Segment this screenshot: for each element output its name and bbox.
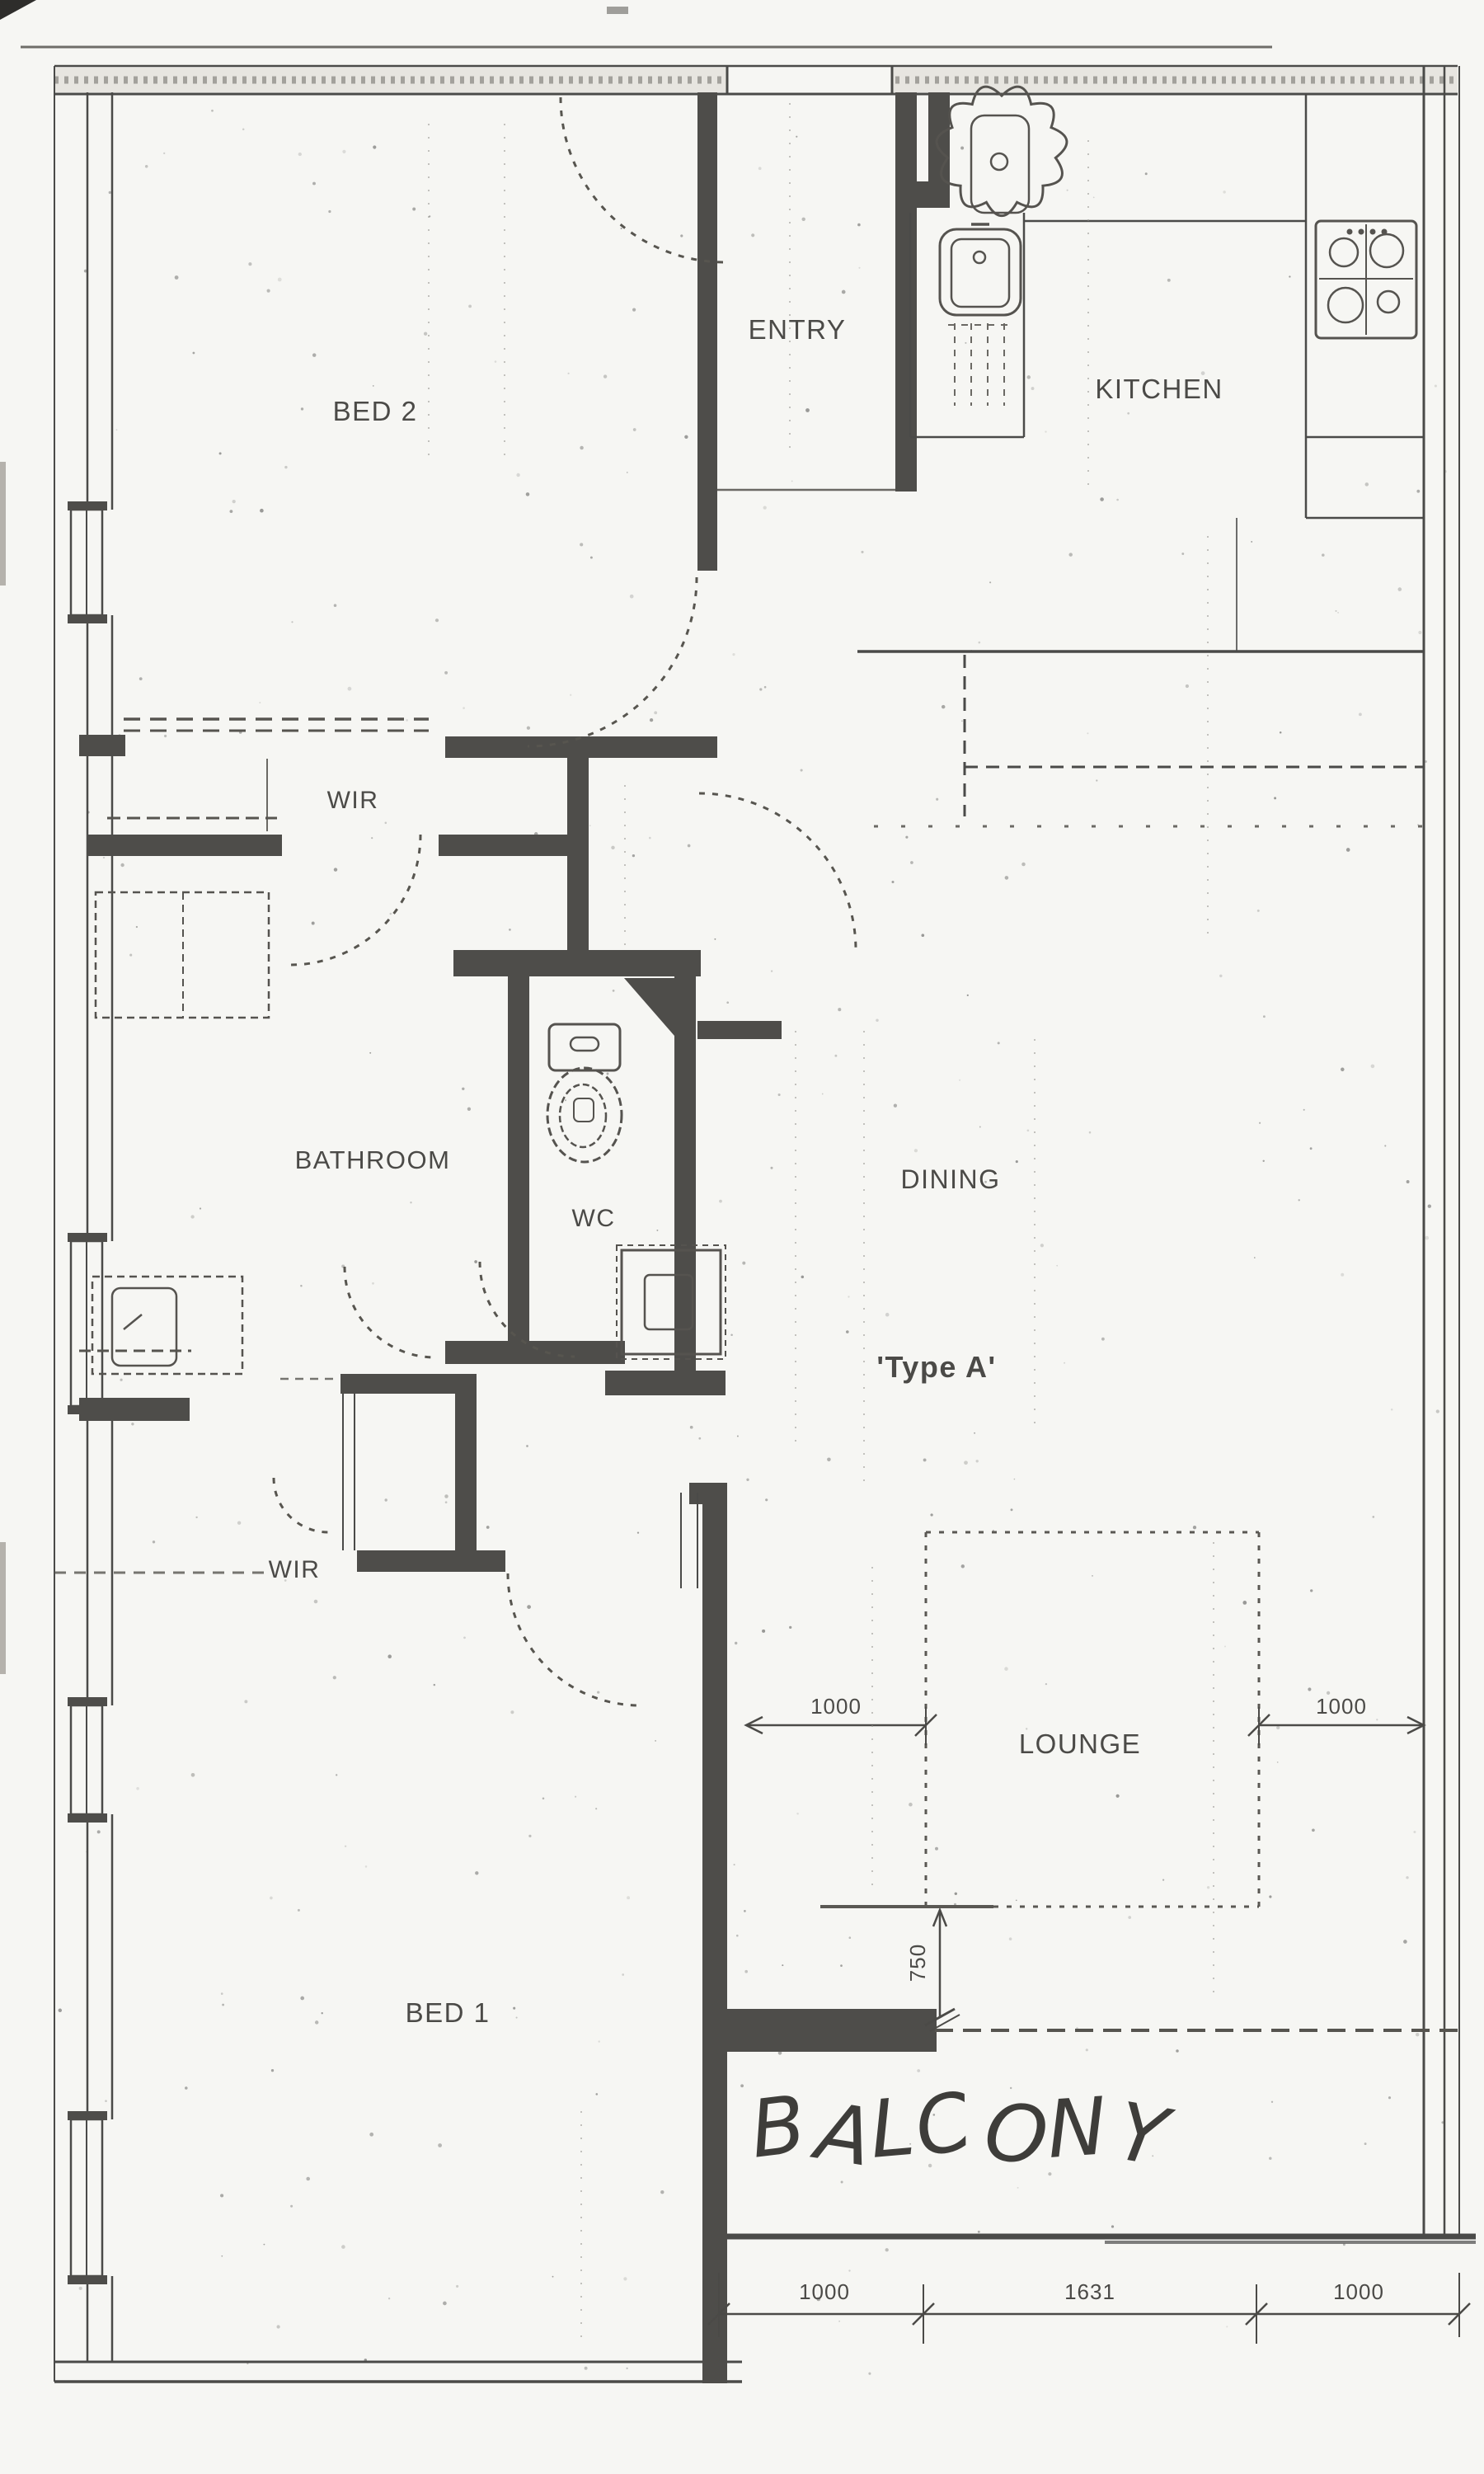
- plant-icon: [937, 87, 1067, 216]
- wall-bed1-right: [702, 1483, 727, 2383]
- scan-streaks: [429, 103, 1214, 2342]
- door-arc-bed2: [528, 577, 697, 746]
- label-entry: ENTRY: [749, 314, 847, 345]
- label-dining: DINING: [901, 1164, 1001, 1194]
- wall-segment: [567, 756, 589, 954]
- room-labels: BED 2 ENTRY KITCHEN WIR BATHROOM WC DINI…: [269, 314, 1223, 2185]
- lounge-dashed-zone: [820, 1532, 1259, 1907]
- dim-bottom-left: 1000: [799, 2279, 850, 2304]
- kitchen-sink-icon: [940, 224, 1021, 406]
- joinery-dashes: [54, 719, 1458, 2030]
- interior-walls: [79, 92, 950, 2383]
- wall-bathroom-bottom: [79, 1398, 190, 1421]
- wall-segment: [697, 1021, 782, 1039]
- label-lounge: LOUNGE: [1019, 1729, 1141, 1759]
- scanned-floor-plan-sheet: BED 2 ENTRY KITCHEN WIR BATHROOM WC DINI…: [0, 0, 1484, 2474]
- dim-bottom-right: 1000: [1333, 2279, 1384, 2304]
- shower-icon: [617, 1245, 726, 1359]
- label-bathroom: BATHROOM: [295, 1145, 451, 1174]
- wall-wir-bottom-left: [87, 835, 282, 856]
- door-arc-hall: [699, 793, 856, 950]
- window-bed1-lower: [66, 2111, 115, 2284]
- window-bed2: [66, 501, 115, 623]
- linen-shelf-icon: [96, 892, 269, 1018]
- wall-entry-bed2: [697, 92, 717, 571]
- wall-lounge-south: [719, 2009, 937, 2052]
- dim-balcony-depth: 750: [905, 1944, 930, 1982]
- label-unit-type: 'Type A': [876, 1350, 996, 1384]
- scan-edge-smudge: [0, 462, 6, 586]
- toilet-icon: [547, 1024, 622, 1162]
- wall-bed2-bottom: [445, 736, 717, 758]
- wall-wc-top: [453, 950, 701, 976]
- scan-mark: [607, 7, 628, 14]
- label-bed2: BED 2: [333, 396, 418, 426]
- wall-robe-bottom: [357, 1550, 505, 1572]
- wall-pantry: [928, 92, 950, 186]
- dimension-labels: 1000 1000 750 1000 1631 1000: [799, 1694, 1384, 2304]
- wall-shower-bottom: [605, 1371, 726, 1395]
- wall-pantry: [895, 181, 950, 208]
- floor-plan-drawing: BED 2 ENTRY KITCHEN WIR BATHROOM WC DINI…: [0, 0, 1484, 2474]
- window-bathroom: [66, 1233, 115, 1414]
- wall-entry-kitchen: [895, 92, 917, 492]
- label-balcony-handwritten: BALCONY: [745, 2073, 1179, 2185]
- dim-bottom-middle: 1631: [1064, 2279, 1115, 2304]
- door-arc-robe: [345, 1267, 435, 1357]
- wall-wir-bottom-right: [439, 835, 569, 856]
- wall-wc-left: [508, 976, 529, 1344]
- dim-lounge-left: 1000: [810, 1694, 862, 1719]
- wall-wc-bottom: [445, 1341, 625, 1364]
- wall-robe-right: [455, 1374, 477, 1572]
- label-wir-upper: WIR: [327, 787, 379, 814]
- wall-corner-fill: [624, 978, 674, 1036]
- scan-edge-smudge: [0, 1542, 6, 1674]
- door-arc-wir2: [274, 1478, 328, 1532]
- window-bed1-upper: [66, 1697, 115, 1823]
- scan-corner-smudge: [0, 0, 36, 20]
- door-arc-bed1: [508, 1573, 640, 1705]
- windows: [66, 66, 892, 2284]
- sink-drainer-dash: [948, 323, 1014, 406]
- front-door-opening: [727, 66, 892, 94]
- stove-icon: [1316, 221, 1416, 338]
- label-kitchen: KITCHEN: [1095, 374, 1223, 404]
- label-wc: WC: [572, 1205, 616, 1232]
- door-arc-bathroom: [290, 835, 420, 965]
- dim-lounge-right: 1000: [1316, 1694, 1367, 1719]
- wall-segment: [79, 735, 125, 756]
- label-bed1: BED 1: [406, 1997, 491, 2028]
- label-wir-lower: WIR: [269, 1556, 321, 1583]
